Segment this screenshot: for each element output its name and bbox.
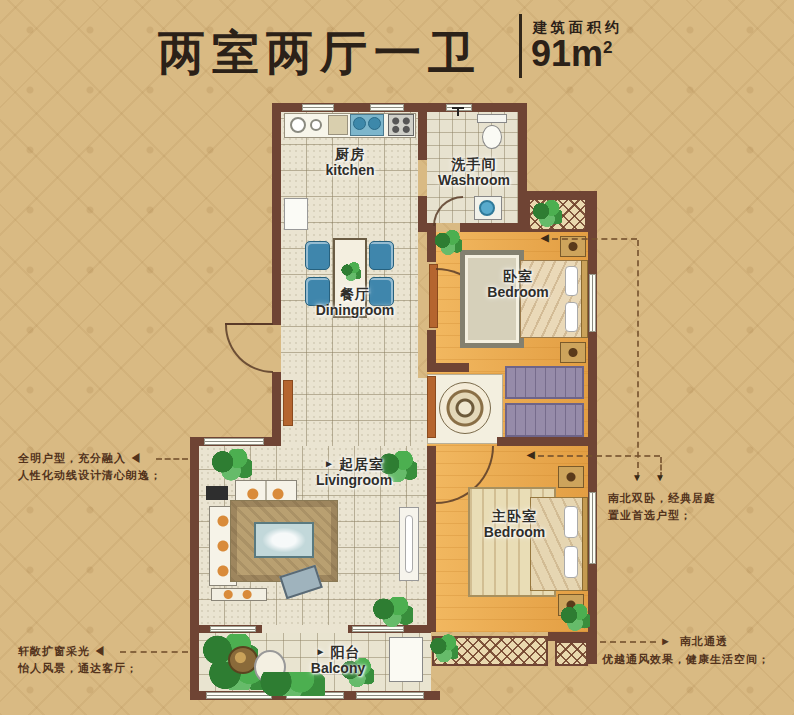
bedroom-north-headboard <box>581 260 588 338</box>
balcony-cabinet <box>389 637 423 682</box>
note-right-top: 南北双卧，经典居庭 置业首选户型； <box>608 490 716 523</box>
note-right-bottom-line1: ► 南北通透 <box>660 633 728 650</box>
dining-chair-1 <box>305 241 330 270</box>
living-radiator-fin <box>405 515 413 573</box>
bedroom-master-nightstand-1 <box>558 466 584 488</box>
bedroom-master-headboard <box>582 497 588 591</box>
bedroom-north-nightstand-2 <box>560 342 586 363</box>
note-right-bottom-arrow-icon: ► <box>660 635 672 647</box>
bedroom-master-pillow-2 <box>564 546 578 578</box>
floorplan-page: 两室两厅一卫 建筑面积约 91m2 <box>0 0 794 715</box>
balcony-label-zh: ►阳台 <box>286 644 390 660</box>
leader-right-bottom <box>600 641 656 643</box>
note-right-bottom-text1: 南北通透 <box>680 635 728 647</box>
vent-mark-vertical <box>457 107 459 116</box>
livingroom-label-en: Livingroom <box>292 472 416 488</box>
dining-table-plant <box>341 262 361 282</box>
living-tv <box>206 486 228 500</box>
wall-hall-top-stub <box>427 363 469 372</box>
corridor-floor <box>281 378 427 446</box>
kitchen-window-1 <box>302 104 334 111</box>
header-divider <box>519 14 522 78</box>
leader-right-top-h2 <box>538 455 660 457</box>
note-left-top-line2: 人性化动线设计清心朗逸； <box>18 467 162 484</box>
bedroom-master-plant <box>560 604 590 632</box>
note-left-bottom-line2: 怡人风景，通达客厅； <box>18 660 138 677</box>
diningroom-label-zh: 餐厅 <box>300 286 410 302</box>
wall-right-exterior <box>588 191 597 632</box>
page-title: 两室两厅一卫 <box>158 22 482 85</box>
note-right-top-line1: 南北双卧，经典居庭 <box>608 490 716 507</box>
west-door-leaf <box>283 380 293 426</box>
kitchen-sink-round-2 <box>310 119 322 131</box>
note-left-top-arrow-icon: ◀ <box>130 452 142 464</box>
note-left-bottom: 轩敞扩窗采光 ◀ 怡人风景，通达客厅； <box>18 643 138 676</box>
kitchen-sink-bowl-1 <box>353 117 366 130</box>
south-flowerbed-plant <box>430 634 458 664</box>
note-right-top-line2: 置业首选户型； <box>608 507 716 524</box>
north-flowerbed-plant <box>532 200 562 228</box>
note-left-top: 全明户型，充分融入 ◀ 人性化动线设计清心朗逸； <box>18 450 162 483</box>
livingroom-zh-text: 起居室 <box>339 456 384 472</box>
area-value: 91m2 <box>531 33 613 75</box>
kitchen-label-en: kitchen <box>300 162 400 178</box>
washroom-label-en: Washroom <box>424 172 524 188</box>
wall-living-master-divider <box>427 446 436 632</box>
toilet-bowl <box>482 125 502 149</box>
bedroom-master-label: 主卧室 Bedroom <box>462 508 567 540</box>
bedroom-master-label-en: Bedroom <box>462 524 567 540</box>
diningroom-label-en: Diningroom <box>300 302 410 318</box>
pointer-bedroom-north-icon: ◀ <box>541 232 549 243</box>
area-superscript: 2 <box>603 38 612 57</box>
living-west-window <box>204 438 264 445</box>
leader-arrow-down-1: ▼ <box>632 472 642 483</box>
wall-flowerbed-top <box>523 191 593 197</box>
note-left-top-text1: 全明户型，充分融入 <box>18 452 126 464</box>
note-left-top-line1: 全明户型，充分融入 ◀ <box>18 450 162 467</box>
bedroom-north-label-en: Bedroom <box>468 284 568 300</box>
kitchen-window-2 <box>370 104 404 111</box>
note-right-bottom-line2: 优越通风效果，健康生活空间； <box>602 651 770 668</box>
bedroom-north-pillow-2 <box>565 302 578 332</box>
balcony-label: ►阳台 Balcony <box>286 644 390 676</box>
dining-chair-3 <box>369 241 394 270</box>
kitchen-worktop <box>328 115 348 135</box>
kitchen-sink-round-1 <box>290 117 306 133</box>
pointer-bedroom-master-icon: ◀ <box>527 449 535 460</box>
wall-master-bottom-corner <box>548 632 597 641</box>
balcony-divider-window <box>210 626 256 632</box>
kitchen-label: 厨房 kitchen <box>300 146 400 178</box>
bedroom-north-window <box>589 274 596 332</box>
leader-left-top <box>156 458 188 460</box>
leader-right-top-h1 <box>552 238 637 240</box>
kitchen-stove <box>388 114 414 136</box>
toilet-tank <box>477 114 507 123</box>
wall-left-lower <box>190 437 199 700</box>
entry-mat-circle <box>439 382 491 434</box>
livingroom-arrow-icon: ► <box>324 458 335 469</box>
south-flowerbed-small <box>555 641 588 666</box>
area-number: 91m <box>531 33 603 74</box>
leader-right-top-v1 <box>637 240 639 478</box>
balcony-door-opening <box>262 625 348 633</box>
wall-washroom-bottom <box>460 223 527 232</box>
kitchen-fridge <box>284 198 308 230</box>
balcony-zh-text: 阳台 <box>330 644 360 660</box>
livingroom-label-zh: ►起居室 <box>292 456 416 472</box>
kitchen-sink-bowl-2 <box>368 117 381 130</box>
wall-kitchen-washroom-lower <box>418 196 427 232</box>
bedroom-north-label: 卧室 Bedroom <box>468 268 568 300</box>
washroom-basin <box>479 200 495 216</box>
diningroom-label: 餐厅 Diningroom <box>300 286 410 318</box>
wall-left-upper <box>272 103 281 325</box>
wall-kitchen-washroom-upper <box>418 103 427 160</box>
living-bench <box>211 588 267 601</box>
balcony-label-en: Balcony <box>286 660 390 676</box>
bedroom-master-window <box>589 492 596 564</box>
wall-left-stub <box>272 372 281 446</box>
wall-master-top <box>497 437 588 446</box>
kitchen-label-zh: 厨房 <box>300 146 400 162</box>
washroom-label-zh: 洗手间 <box>424 156 524 172</box>
living-plant-topleft <box>210 449 252 481</box>
livingroom-label: ►起居室 Livingroom <box>292 456 416 488</box>
hall-closet-top <box>505 366 584 399</box>
bedroom-master-label-zh: 主卧室 <box>462 508 567 524</box>
note-left-bottom-text1: 轩敞扩窗采光 <box>18 645 90 657</box>
bedroom-north-label-zh: 卧室 <box>468 268 568 284</box>
living-coffee-table <box>254 522 314 558</box>
hall-door-leaf <box>427 376 436 438</box>
note-left-bottom-arrow-icon: ◀ <box>94 645 106 657</box>
washroom-label: 洗手间 Washroom <box>424 156 524 188</box>
bedroom-north-plant <box>434 230 462 256</box>
living-plant-bottomright <box>371 597 413 627</box>
leader-arrow-down-2: ▼ <box>655 472 665 483</box>
balcony-glass-3 <box>356 692 424 699</box>
hall-closet-bottom <box>505 403 584 437</box>
balcony-arrow-icon: ► <box>316 646 327 657</box>
leader-left-bottom <box>120 651 188 653</box>
